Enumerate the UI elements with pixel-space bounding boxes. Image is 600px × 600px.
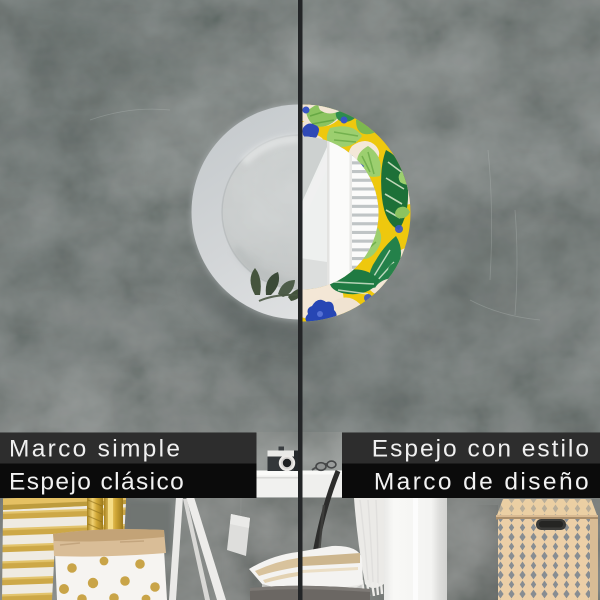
svg-text:Espejo clásico: Espejo clásico [9,469,185,496]
svg-text:Marco simple: Marco simple [9,436,182,463]
svg-text:Marco de diseño: Marco de diseño [374,469,591,496]
svg-text:Espejo con estilo: Espejo con estilo [372,436,591,463]
